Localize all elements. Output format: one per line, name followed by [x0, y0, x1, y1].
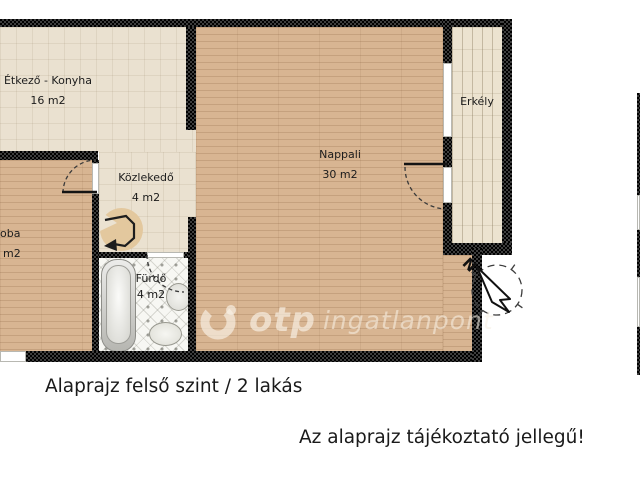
wall-bottom: [26, 351, 482, 362]
wall-balcony-left-1: [443, 19, 452, 63]
living-label-block: Nappali 30 m2: [285, 148, 395, 181]
caption-disclaimer: Az alaprajz tájékoztató jellegű!: [299, 427, 585, 448]
bedroom-area: m2: [0, 247, 42, 260]
watermark-suffix: ingatlanpont: [323, 306, 494, 335]
wall-kitchen-living-divider: [186, 27, 196, 130]
kitchen-label: Étkező - Konyha: [0, 74, 96, 87]
room-balcony-floor: [452, 27, 502, 243]
toilet-icon: [149, 322, 182, 346]
spiral-stair-icon: [100, 208, 143, 251]
bathroom-label-block: Fürdő 4 m2: [110, 272, 192, 301]
balcony-door-opening: [443, 167, 452, 203]
kitchen-area: 16 m2: [0, 94, 96, 107]
wall-top: [0, 19, 512, 27]
hallway-label: Közlekedő: [99, 171, 193, 184]
watermark: otp ingatlanpont: [197, 298, 494, 342]
hallway-area: 4 m2: [99, 191, 193, 204]
floorplan-image: N Étkező - Konyha 16 m2 Közlekedő 4 m2 N…: [0, 0, 640, 480]
wall-balcony-left-2: [443, 137, 452, 167]
living-area: 30 m2: [285, 168, 395, 181]
watermark-brand: otp: [249, 300, 316, 340]
bathroom-label: Fürdő: [110, 272, 192, 285]
balcony-label: Erkély: [452, 95, 502, 108]
bathroom-area: 4 m2: [110, 288, 192, 301]
kitchen-label-block: Étkező - Konyha 16 m2: [0, 74, 96, 107]
living-label: Nappali: [285, 148, 395, 161]
bedroom-window: [0, 351, 26, 362]
bedroom-label: oba: [0, 227, 42, 240]
wall-balcony-right: [502, 19, 512, 255]
bedroom-label-block: oba m2: [0, 227, 42, 260]
caption-title: Alaprajz felső szint / 2 lakás: [45, 376, 302, 397]
living-window: [443, 63, 452, 137]
bedroom-door-opening: [92, 163, 99, 194]
wall-bedroom-top: [0, 151, 98, 160]
otp-logo-icon: [197, 298, 241, 342]
hallway-label-block: Közlekedő 4 m2: [99, 171, 193, 204]
bathroom-door-opening: [147, 252, 184, 258]
